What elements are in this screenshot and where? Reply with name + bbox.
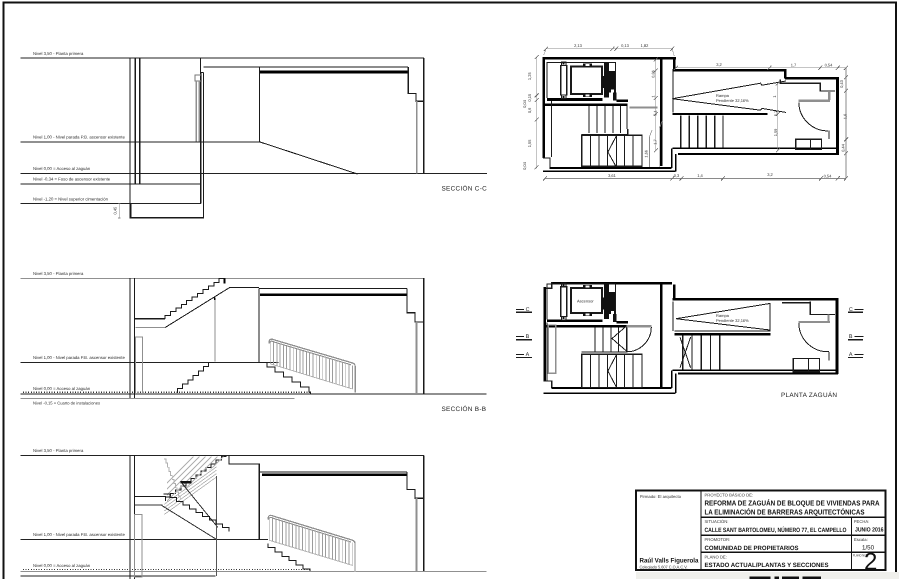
svg-text:3,61: 3,61 <box>608 173 617 178</box>
svg-text:0,54: 0,54 <box>825 63 834 68</box>
svg-text:0,13: 0,13 <box>621 43 630 48</box>
svg-text:JUNIO 2016: JUNIO 2016 <box>855 527 884 534</box>
svg-text:SECCIÓN C-C: SECCIÓN C-C <box>442 185 488 193</box>
svg-text:Nivel 3,50 - Planta primera: Nivel 3,50 - Planta primera <box>33 271 84 276</box>
svg-text:1,4: 1,4 <box>697 173 703 178</box>
svg-text:0,04: 0,04 <box>522 99 527 108</box>
svg-text:Nivel -0,34 = Foso de ascensor: Nivel -0,34 = Foso de ascensor existente <box>33 177 111 182</box>
svg-text:3,2: 3,2 <box>767 172 773 177</box>
svg-text:PLANTA ZAGUÁN: PLANTA ZAGUÁN <box>781 391 837 399</box>
svg-text:PLANO DE:: PLANO DE: <box>705 554 727 559</box>
svg-text:Nivel -0,15 = Cuarto de instal: Nivel -0,15 = Cuarto de instalaciones <box>33 400 100 405</box>
svg-text:0,45: 0,45 <box>113 206 118 215</box>
svg-text:5,1: 5,1 <box>773 111 778 116</box>
svg-text:2,13: 2,13 <box>574 43 583 48</box>
svg-text:1,82: 1,82 <box>641 43 650 48</box>
svg-text:0,04: 0,04 <box>522 161 527 170</box>
svg-text:1,6: 1,6 <box>843 113 848 119</box>
svg-text:Nivel 1,00 - Nivel parada P.B.: Nivel 1,00 - Nivel parada P.B. ascensor … <box>33 135 125 140</box>
svg-text:1,55: 1,55 <box>527 139 532 148</box>
svg-text:SITUACIÓN:: SITUACIÓN: <box>705 519 729 524</box>
svg-text:Escala:: Escala: <box>854 537 868 542</box>
svg-text:1,7: 1,7 <box>791 63 797 68</box>
svg-text:FECHA:: FECHA: <box>854 519 869 524</box>
svg-text:PROYECTO BÁSICO DE:: PROYECTO BÁSICO DE: <box>705 493 754 498</box>
svg-text:Nivel 0,00 = Acceso al zaguán: Nivel 0,00 = Acceso al zaguán <box>33 166 91 171</box>
svg-text:0,3: 0,3 <box>674 173 680 178</box>
svg-text:LA ELIMINACIÓN DE BARRERAS ARQ: LA ELIMINACIÓN DE BARRERAS ARQUITECTÓNIC… <box>705 508 865 517</box>
svg-text:1: 1 <box>651 95 656 97</box>
svg-text:0,86: 0,86 <box>651 70 656 78</box>
svg-text:1: 1 <box>772 95 777 97</box>
svg-text:Raúl Valls Figuerola: Raúl Valls Figuerola <box>640 558 699 565</box>
svg-text:Nivel 3,50 - Planta primera: Nivel 3,50 - Planta primera <box>33 448 84 453</box>
svg-text:3,2: 3,2 <box>716 62 722 67</box>
svg-text:0,43: 0,43 <box>839 79 844 88</box>
svg-text:PROMOTOR:: PROMOTOR: <box>705 537 731 542</box>
svg-text:Pendiente 32,16%: Pendiente 32,16% <box>716 98 749 103</box>
svg-text:2: 2 <box>864 549 877 576</box>
svg-text:1,66: 1,66 <box>644 150 649 158</box>
svg-text:Colegiado 5.607 C.O.A.C.V.: Colegiado 5.607 C.O.A.C.V. <box>640 565 688 570</box>
svg-text:Pendiente 32,16%: Pendiente 32,16% <box>716 318 749 323</box>
svg-text:Firmado: El arquitecto: Firmado: El arquitecto <box>640 494 682 499</box>
svg-text:SECCIÓN B-B: SECCIÓN B-B <box>442 405 487 413</box>
svg-text:REFORMA DE ZAGUÁN DE BLOQUE DE: REFORMA DE ZAGUÁN DE BLOQUE DE VIVIENDAS… <box>705 499 880 508</box>
svg-text:Ascensor: Ascensor <box>577 299 594 304</box>
svg-text:1,7: 1,7 <box>653 139 658 144</box>
svg-text:0,54: 0,54 <box>824 173 833 178</box>
svg-text:Nivel 1,00 - Nivel parada P.B.: Nivel 1,00 - Nivel parada P.B. ascensor … <box>33 355 125 360</box>
svg-text:0,44: 0,44 <box>841 143 846 152</box>
svg-text:Nivel 1,00 - Nivel parada P.B.: Nivel 1,00 - Nivel parada P.B. ascensor … <box>33 532 125 537</box>
svg-text:Nivel 3,50 - Planta primera: Nivel 3,50 - Planta primera <box>33 51 84 56</box>
svg-text:5,1: 5,1 <box>653 110 658 115</box>
svg-text:1,59: 1,59 <box>773 129 778 137</box>
svg-text:ESTADO ACTUAL/PLANTAS Y SECCIO: ESTADO ACTUAL/PLANTAS Y SECCIONES <box>705 562 829 569</box>
svg-text:CALLE SANT BARTOLOMEU, NÚMERO: CALLE SANT BARTOLOMEU, NÚMERO 77, EL CAM… <box>705 526 847 534</box>
svg-text:Nivel 0,00 = Acceso al zaguán: Nivel 0,00 = Acceso al zaguán <box>33 386 91 391</box>
svg-text:1,25: 1,25 <box>527 72 532 81</box>
svg-text:Nivel 0,00 = Acceso al zaguán: Nivel 0,00 = Acceso al zaguán <box>33 563 91 568</box>
svg-text:Nivel -1,20 = Nivel superior c: Nivel -1,20 = Nivel superior cimentación <box>33 196 109 201</box>
svg-text:COMUNIDAD DE PROPIETARIOS: COMUNIDAD DE PROPIETARIOS <box>705 545 799 552</box>
svg-text:0,15: 0,15 <box>527 93 532 102</box>
svg-text:0,6: 0,6 <box>527 107 532 113</box>
